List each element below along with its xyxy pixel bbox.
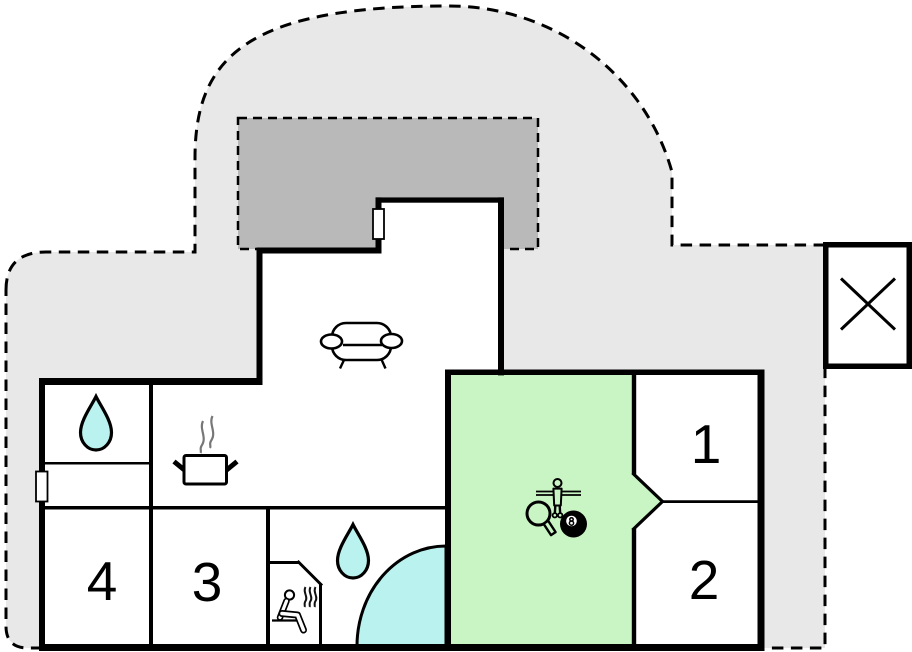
svg-text:2: 2 [689, 549, 720, 611]
svg-text:4: 4 [87, 550, 118, 612]
svg-text:1: 1 [691, 413, 722, 475]
svg-text:3: 3 [192, 551, 223, 613]
